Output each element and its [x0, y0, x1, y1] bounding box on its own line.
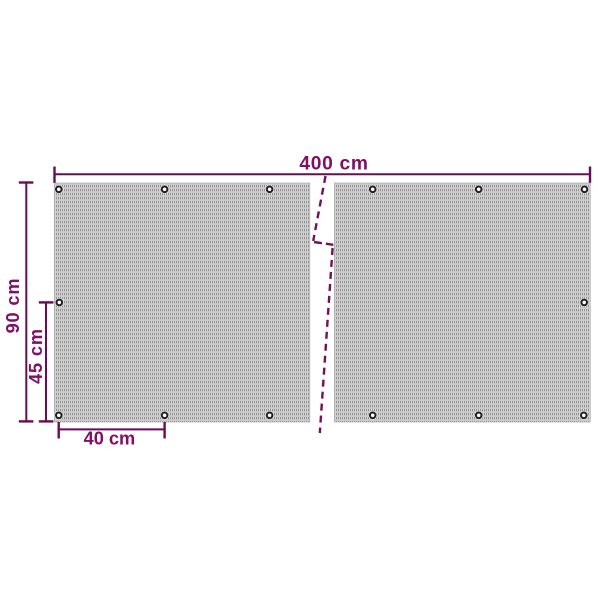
svg-text:400 cm: 400 cm [299, 154, 368, 175]
svg-text:40 cm: 40 cm [84, 429, 136, 449]
svg-text:45 cm: 45 cm [26, 328, 46, 384]
svg-text:90 cm: 90 cm [3, 278, 23, 334]
